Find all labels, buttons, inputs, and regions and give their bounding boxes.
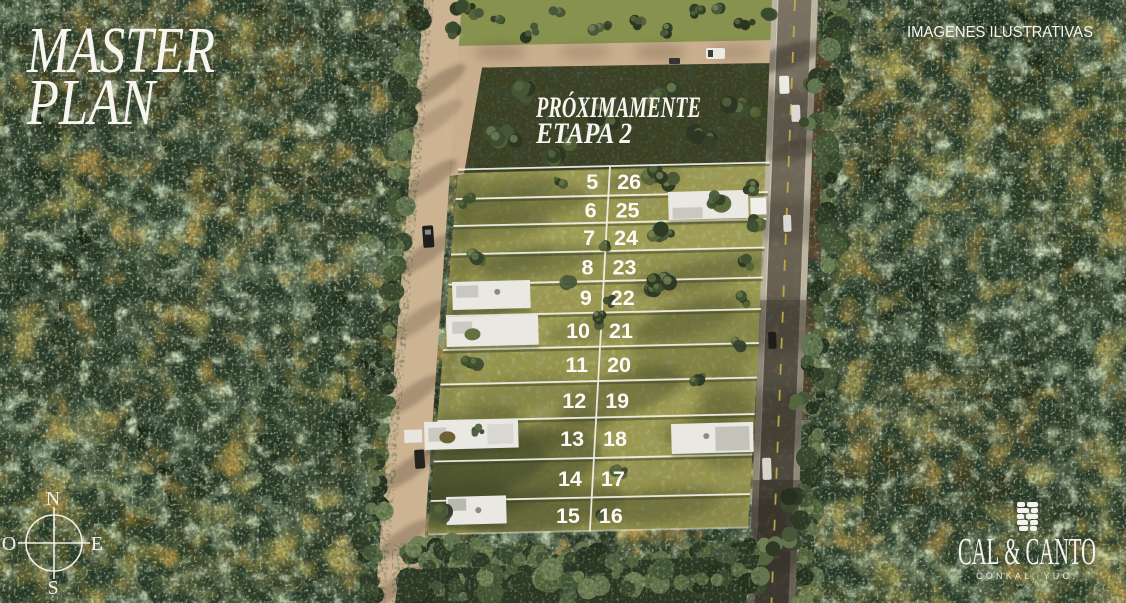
svg-text:10: 10 [566,319,590,343]
svg-text:O: O [2,533,16,555]
svg-text:S: S [47,577,58,599]
svg-text:IMAGENES ILUSTRATIVAS: IMAGENES ILUSTRATIVAS [907,24,1093,41]
svg-text:5: 5 [586,170,598,194]
svg-text:13: 13 [560,427,584,451]
svg-text:16: 16 [599,504,623,528]
svg-text:17: 17 [601,467,625,491]
svg-text:E: E [91,533,103,555]
svg-text:23: 23 [613,256,637,280]
svg-text:CONKAL, YUC.: CONKAL, YUC. [976,571,1078,581]
svg-text:N: N [46,488,60,510]
svg-text:18: 18 [603,427,627,451]
svg-text:8: 8 [582,256,594,280]
svg-text:20: 20 [607,353,631,377]
svg-text:11: 11 [565,353,588,377]
svg-text:14: 14 [558,467,582,491]
svg-text:9: 9 [580,286,592,310]
svg-text:24: 24 [614,226,638,250]
svg-text:26: 26 [617,170,641,194]
svg-text:19: 19 [605,389,629,413]
svg-text:ETAPA 2: ETAPA 2 [535,117,632,150]
svg-text:25: 25 [616,199,640,223]
svg-text:CAL & CANTO: CAL & CANTO [958,531,1096,573]
svg-text:6: 6 [585,199,597,223]
svg-text:15: 15 [556,504,580,528]
svg-text:7: 7 [583,226,595,250]
svg-text:PLAN: PLAN [26,66,158,139]
svg-text:12: 12 [562,389,586,413]
svg-text:21: 21 [609,319,633,343]
svg-text:22: 22 [611,286,635,310]
